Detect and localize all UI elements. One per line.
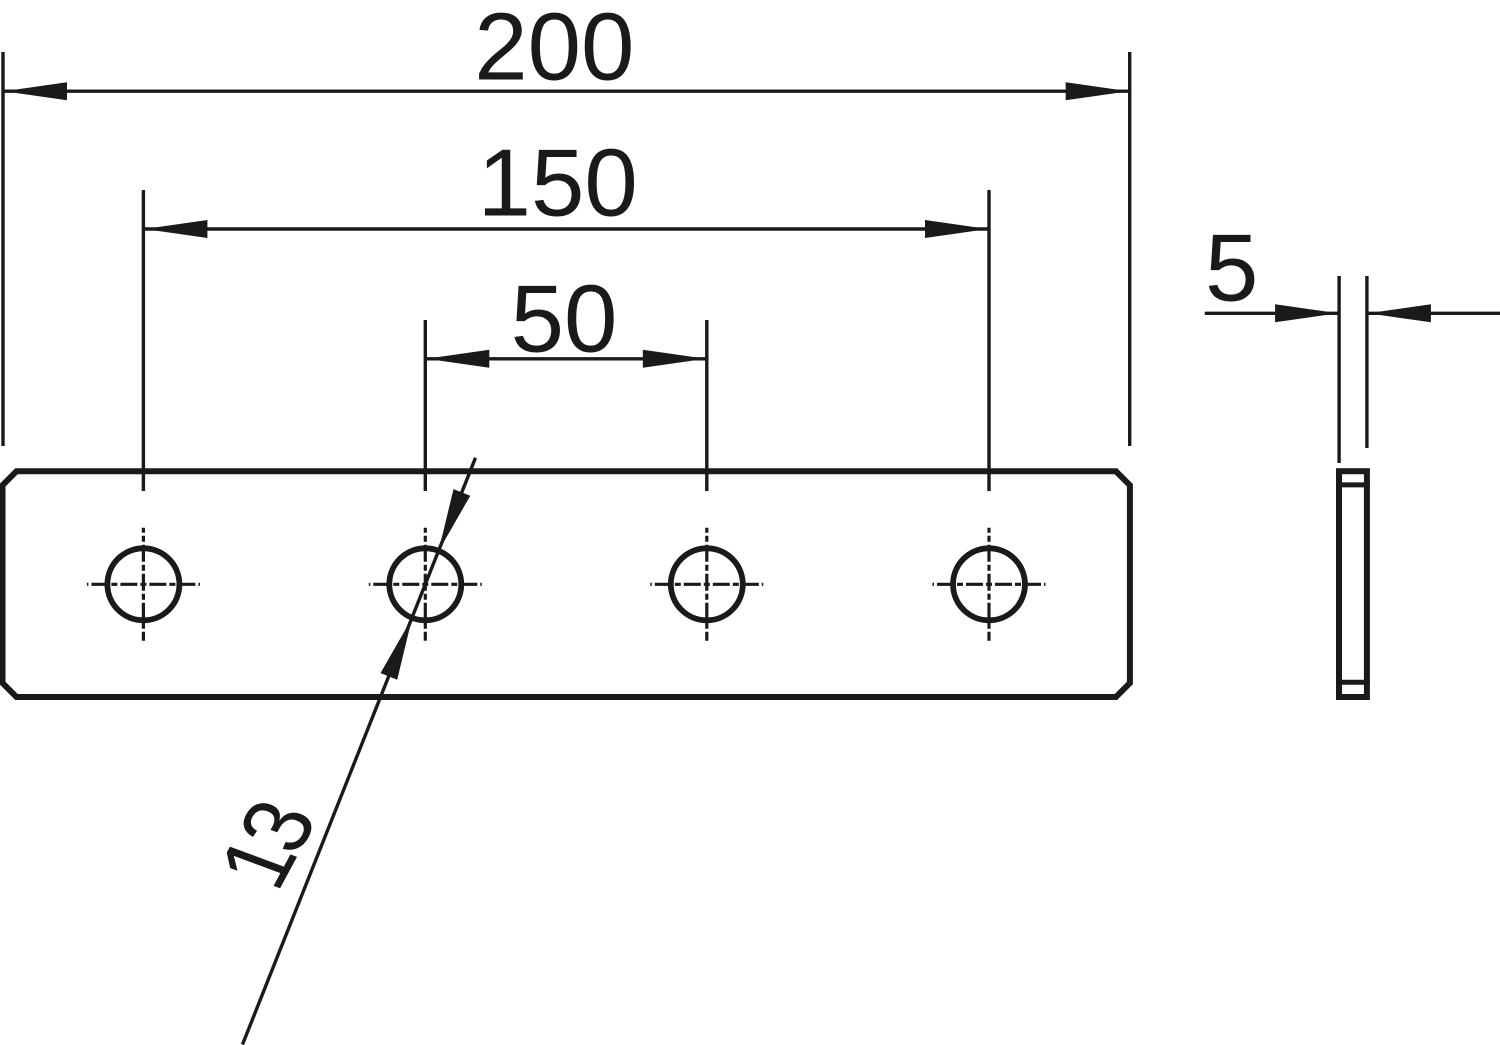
svg-text:5: 5	[1205, 215, 1258, 322]
svg-text:50: 50	[511, 266, 618, 373]
svg-text:200: 200	[474, 0, 634, 101]
svg-text:150: 150	[478, 130, 638, 237]
